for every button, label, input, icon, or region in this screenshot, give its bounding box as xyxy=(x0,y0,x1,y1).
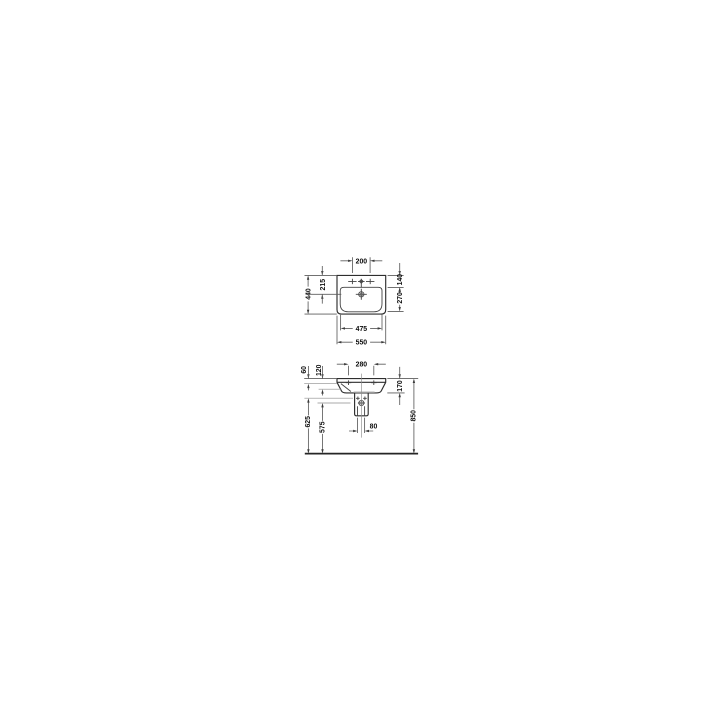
svg-text:200: 200 xyxy=(356,258,368,265)
svg-text:625: 625 xyxy=(305,416,312,428)
svg-text:170: 170 xyxy=(397,380,404,392)
svg-text:475: 475 xyxy=(356,326,368,333)
svg-text:120: 120 xyxy=(316,364,323,376)
svg-text:60: 60 xyxy=(301,366,308,374)
svg-text:550: 550 xyxy=(356,340,368,347)
svg-text:80: 80 xyxy=(370,423,378,430)
svg-text:140: 140 xyxy=(397,274,404,286)
svg-text:215: 215 xyxy=(320,279,327,291)
svg-text:270: 270 xyxy=(397,292,404,304)
svg-text:280: 280 xyxy=(356,362,368,369)
svg-text:850: 850 xyxy=(410,410,417,422)
svg-text:575: 575 xyxy=(320,421,327,433)
